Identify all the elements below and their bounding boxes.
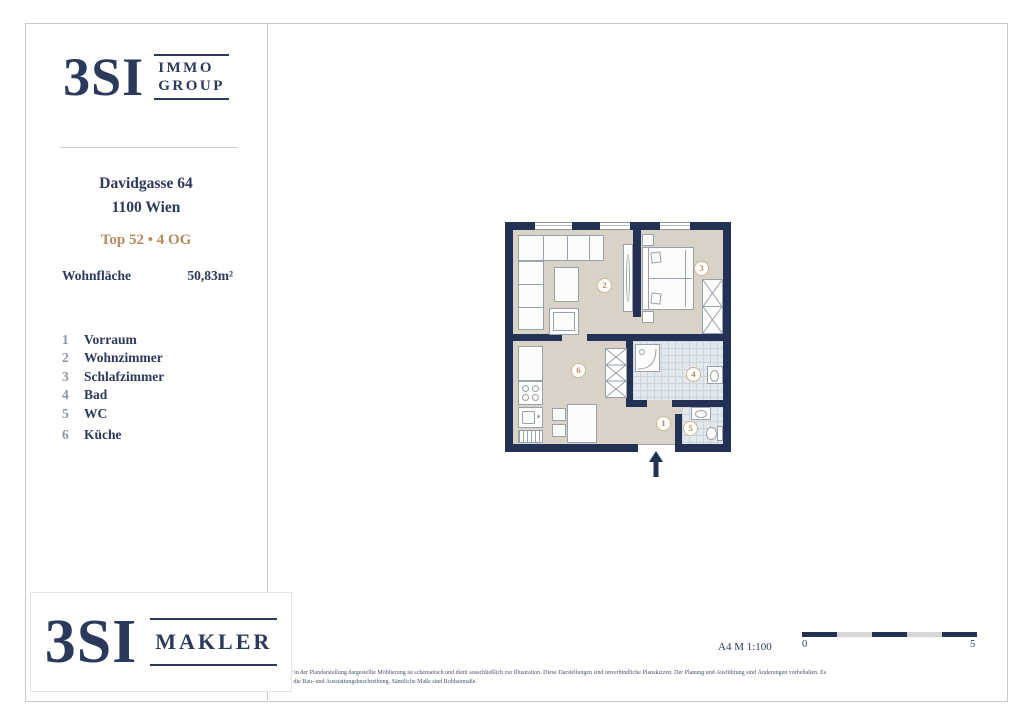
wall-bath-bottom-b	[672, 400, 723, 407]
room-badge-wohnzimmer: 2	[597, 278, 612, 293]
wall-mid-main	[587, 334, 723, 341]
kitchen-appliance	[518, 430, 543, 443]
legend-num: 5	[62, 405, 76, 423]
sofa-left	[518, 261, 544, 330]
wall-bath-left	[626, 341, 633, 400]
nightstand-bottom	[642, 311, 654, 323]
wall-bath-bottom-a	[626, 400, 647, 407]
kitchen-sink	[518, 407, 543, 428]
legend-row: 6Küche	[62, 426, 242, 444]
area-value: 50,83m²	[187, 268, 233, 284]
window-bedroom	[660, 222, 690, 230]
wall-left	[505, 222, 513, 452]
double-bed	[642, 247, 694, 310]
legend-label: WC	[84, 405, 107, 423]
disclaimer-line2: gilt die Bau- und Ausstattungsbeschreibu…	[284, 678, 809, 687]
kitchen-counter	[518, 346, 543, 381]
living-area-row: Wohnfläche 50,83m²	[62, 268, 233, 284]
tv-sideboard	[623, 244, 633, 312]
room-badge-vorraum: 1	[656, 416, 671, 431]
shower	[635, 344, 660, 372]
coffee-table	[554, 267, 579, 302]
legend-num: 2	[62, 349, 76, 367]
window-living-1	[535, 222, 572, 230]
disclaimer-text: Die in der Plandarstellung dargestellte …	[284, 669, 809, 687]
wall-living-bedroom	[633, 230, 641, 317]
legend-num: 6	[62, 426, 76, 444]
floorplan: 1 2 3 4 5 6	[505, 222, 731, 452]
legend-label: Vorraum	[84, 331, 137, 349]
address-line2: 1100 Wien	[25, 196, 267, 220]
address-line1: Davidgasse 64	[25, 172, 267, 196]
legend-row: 4Bad	[62, 386, 242, 404]
closet-x-pattern	[606, 349, 626, 397]
brand-immo-group: IMMO GROUP	[154, 54, 229, 100]
wardrobe	[702, 279, 723, 334]
legend-row: 2Wohnzimmer	[62, 349, 242, 367]
brand-3si: 3SI	[63, 50, 144, 104]
wall-mid-kitchen	[513, 334, 562, 341]
wc-sink	[691, 407, 711, 420]
brand-3si-makler: 3SI	[45, 611, 138, 673]
room-badge-kueche: 6	[571, 363, 586, 378]
bath-sink	[707, 366, 723, 384]
legend-row: 1Vorraum	[62, 331, 242, 349]
legend-label: Bad	[84, 386, 107, 404]
unit-line: Top 52 • 4 OG	[25, 232, 267, 249]
room-badge-schlafzimmer: 3	[694, 261, 709, 276]
immo-group-logo: 3SI IMMO GROUP	[25, 50, 267, 104]
wardrobe-x-pattern	[703, 280, 722, 333]
chair	[552, 408, 566, 421]
brand-immo: IMMO	[158, 59, 225, 77]
area-label: Wohnfläche	[62, 268, 131, 284]
legend-row: 5WC	[62, 405, 242, 423]
room-legend: 1Vorraum 2Wohnzimmer 3Schlafzimmer 4Bad …	[62, 331, 242, 444]
wall-bottom-left	[505, 444, 638, 452]
format-scale-label: A4 M 1:100	[718, 641, 772, 653]
legend-label: Küche	[84, 426, 122, 444]
stove	[518, 381, 543, 405]
legend-num: 4	[62, 386, 76, 404]
address-block: Davidgasse 64 1100 Wien	[25, 172, 267, 220]
sofa-top	[518, 235, 604, 261]
legend-label: Wohnzimmer	[84, 349, 163, 367]
disclaimer-line1: Die in der Plandarstellung dargestellte …	[284, 669, 809, 678]
hall-closet	[605, 348, 627, 398]
legend-label: Schlafzimmer	[84, 368, 164, 386]
window-living-2	[600, 222, 630, 230]
wall-bottom-right	[675, 444, 731, 452]
legend-row: 3Schlafzimmer	[62, 368, 242, 386]
makler-logo-card: 3SI MAKLER	[30, 592, 292, 692]
kitchen-table	[567, 404, 597, 443]
brand-makler: MAKLER	[150, 618, 277, 666]
scale-start-label: 0	[802, 639, 807, 650]
entrance-arrow-icon	[646, 451, 666, 478]
legend-num: 1	[62, 331, 76, 349]
logo-divider-rule	[60, 147, 238, 148]
scale-bar	[802, 632, 977, 637]
toilet	[706, 425, 723, 442]
scale-end-label: 5	[970, 639, 975, 650]
nightstand-top	[642, 234, 654, 246]
brand-group: GROUP	[158, 77, 225, 95]
legend-num: 3	[62, 368, 76, 386]
wall-wc-left	[675, 414, 682, 444]
wall-right	[723, 222, 731, 452]
room-badge-bad: 4	[686, 367, 701, 382]
shower-glass-arc	[636, 345, 659, 371]
chair	[552, 424, 566, 437]
room-badge-wc: 5	[683, 421, 698, 436]
side-table	[549, 308, 579, 335]
